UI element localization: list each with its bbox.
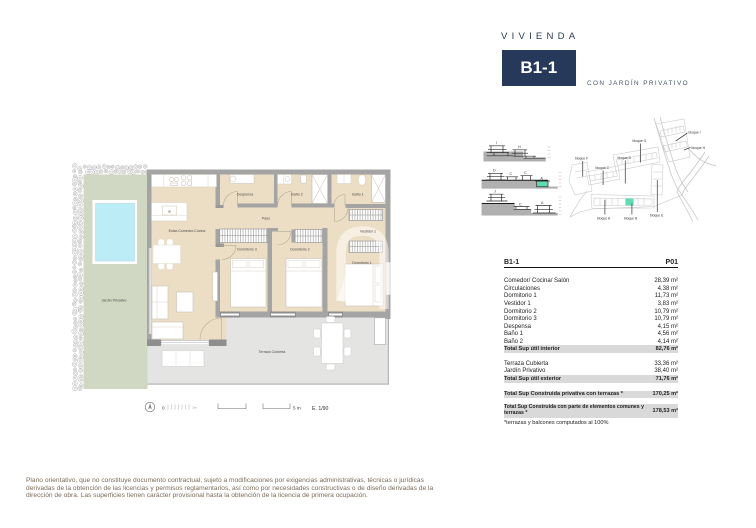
svg-text:H: H — [518, 145, 521, 149]
svg-text:Baño 2: Baño 2 — [291, 193, 302, 197]
svg-text:D: D — [493, 169, 496, 173]
svg-text:1m: 1m — [193, 406, 198, 410]
svg-text:Dormitorio 3: Dormitorio 3 — [237, 248, 257, 252]
svg-text:bloque C: bloque C — [596, 166, 610, 170]
svg-text:Jardín Privativo: Jardín Privativo — [102, 299, 127, 303]
svg-text:E. 1/90: E. 1/90 — [312, 406, 329, 412]
svg-text:A: A — [541, 176, 544, 180]
svg-text:Vestidor 1: Vestidor 1 — [360, 230, 376, 234]
svg-text:J: J — [494, 190, 496, 194]
svg-text:Baño 1: Baño 1 — [352, 193, 363, 197]
svg-text:bloque I: bloque I — [689, 130, 701, 134]
svg-text:0: 0 — [162, 406, 165, 411]
svg-text:Despensa: Despensa — [237, 193, 253, 197]
svg-text:Dormitorio 1: Dormitorio 1 — [352, 261, 372, 265]
svg-text:Dormitorio 2: Dormitorio 2 — [290, 248, 310, 252]
svg-text:C: C — [510, 172, 513, 176]
svg-text:5 m: 5 m — [293, 406, 301, 411]
svg-text:bloque G: bloque G — [633, 139, 647, 143]
svg-text:bloque F: bloque F — [575, 157, 588, 161]
svg-text:Terraza Cubierta: Terraza Cubierta — [259, 350, 286, 354]
svg-text:C: C — [524, 171, 527, 175]
svg-text:bloque D: bloque D — [618, 156, 632, 160]
svg-text:I: I — [496, 141, 497, 145]
svg-text:bloque A: bloque A — [597, 216, 611, 220]
svg-text:Estar-Comedor-Cocina: Estar-Comedor-Cocina — [169, 229, 206, 233]
svg-text:bloque E: bloque E — [650, 214, 664, 218]
svg-text:bloque B: bloque B — [624, 216, 638, 220]
svg-text:A: A — [541, 201, 544, 205]
svg-text:C: C — [519, 202, 522, 206]
svg-text:bloque H: bloque H — [692, 146, 706, 150]
svg-text:Paso: Paso — [262, 217, 270, 221]
